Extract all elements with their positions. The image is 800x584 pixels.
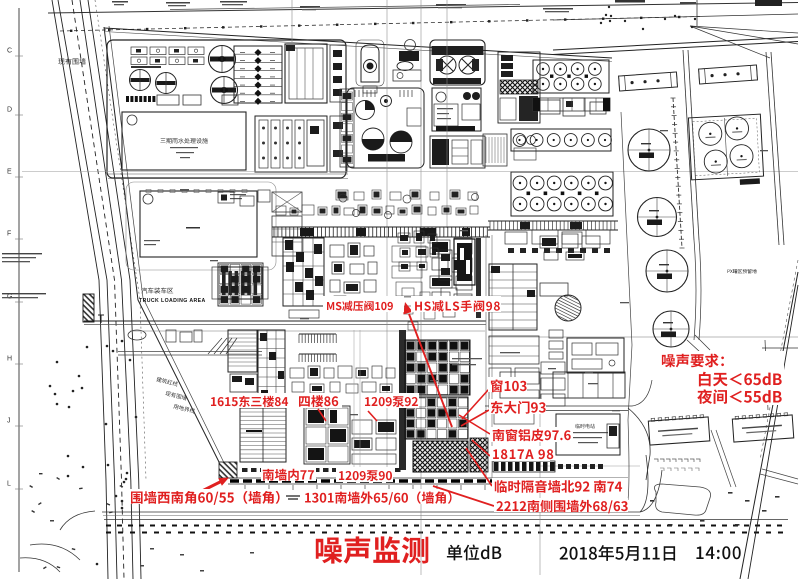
- svg-text:D: D: [7, 107, 12, 114]
- svg-text:F: F: [7, 231, 11, 238]
- svg-text:TRUCK LOADING AREA: TRUCK LOADING AREA: [139, 298, 206, 304]
- svg-text:L: L: [7, 481, 11, 488]
- svg-text:E: E: [7, 169, 12, 176]
- svg-text:C: C: [7, 48, 12, 55]
- svg-text:J: J: [7, 418, 11, 425]
- svg-text:H: H: [7, 356, 12, 363]
